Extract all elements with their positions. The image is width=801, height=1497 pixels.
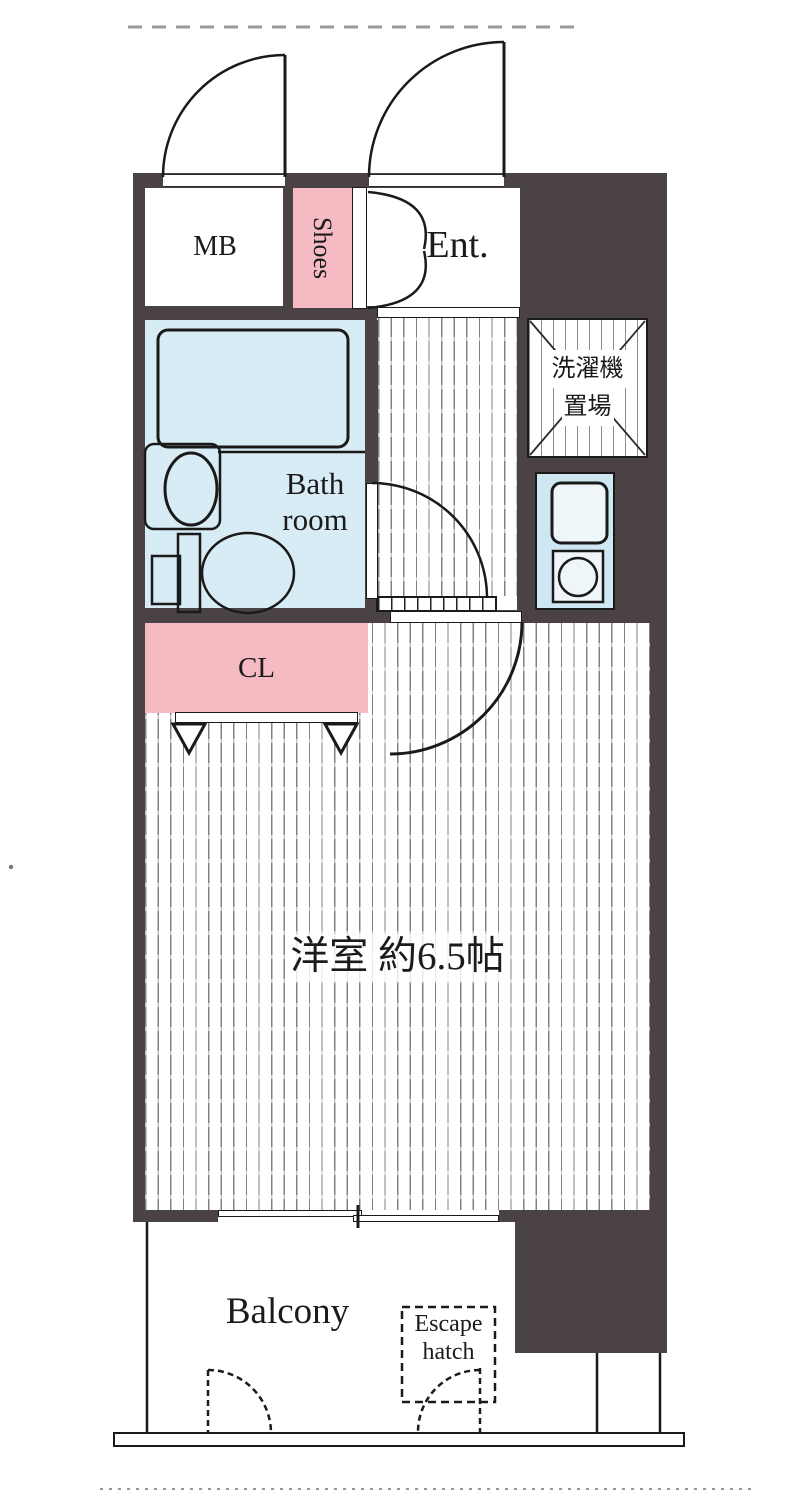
entrance-label: Ent. [395, 188, 520, 303]
main-room-label-text: 洋室 約6.5帖 [285, 934, 510, 981]
scan-artifact-dot [9, 865, 13, 869]
wall-bottom-left [133, 1210, 218, 1222]
mb-room-label-text: MB [193, 230, 237, 264]
escape-hatch-door-swing [418, 1368, 480, 1433]
main-room-label: 洋室 約6.5帖 [145, 905, 650, 1010]
laundry-label-line1: 洗濯機 [550, 350, 626, 388]
bathroom-label: Bath room [255, 462, 375, 542]
mb-door-opening [163, 174, 285, 187]
floor-plan: MB Shoes Ent. 洗濯機 置場 Bath room CL 洋室 約6.… [0, 0, 801, 1497]
escape-hatch-label-line1: Escape [415, 1311, 483, 1339]
mb-door-swing [163, 55, 285, 177]
balcony-window-left-sash [218, 1210, 362, 1217]
wall-under-wash [517, 458, 667, 472]
mb-room-label: MB [145, 188, 285, 305]
hallway-step-threshold [376, 596, 497, 612]
wall-hall-right [517, 310, 527, 472]
entrance-door-opening [369, 174, 504, 187]
balcony-railing [113, 1432, 685, 1447]
entrance-threshold [377, 307, 520, 318]
shoes-door-panel [352, 187, 367, 309]
kitchen-counter [535, 472, 615, 610]
escape-hatch-label-line2: hatch [423, 1339, 475, 1367]
closet-label: CL [145, 623, 368, 713]
closet-label-text: CL [238, 651, 275, 686]
wall-bottom-right-block [515, 1210, 667, 1353]
bathroom-label-line1: Bath [286, 466, 345, 502]
balcony-window-right-sash [353, 1215, 499, 1222]
wall-under-bath [133, 608, 378, 624]
balcony-door-swing-left [208, 1370, 271, 1433]
wall-right-column [650, 318, 667, 1210]
entrance-label-text: Ent. [426, 223, 488, 269]
hallway-floor [378, 317, 517, 596]
laundry-label: 洗濯機 置場 [527, 340, 648, 436]
closet-door-strip [175, 712, 358, 723]
main-room-door-panel [390, 611, 522, 623]
entrance-door-swing [369, 42, 504, 177]
wall-bottom-mid [499, 1210, 515, 1222]
balcony-partition-lines [597, 1353, 660, 1433]
shoes-label-text: Shoes [307, 217, 338, 279]
shoes-label: Shoes [293, 188, 352, 308]
bathroom-label-line2: room [282, 502, 347, 538]
laundry-label-line2: 置場 [562, 388, 614, 426]
wall-kitchen-left [517, 472, 537, 610]
balcony-label: Balcony [180, 1280, 395, 1345]
wall-top-right-block [520, 173, 667, 318]
wall-left-column [133, 173, 145, 1222]
escape-hatch-label: Escape hatch [402, 1310, 495, 1368]
balcony-label-text: Balcony [226, 1290, 349, 1334]
